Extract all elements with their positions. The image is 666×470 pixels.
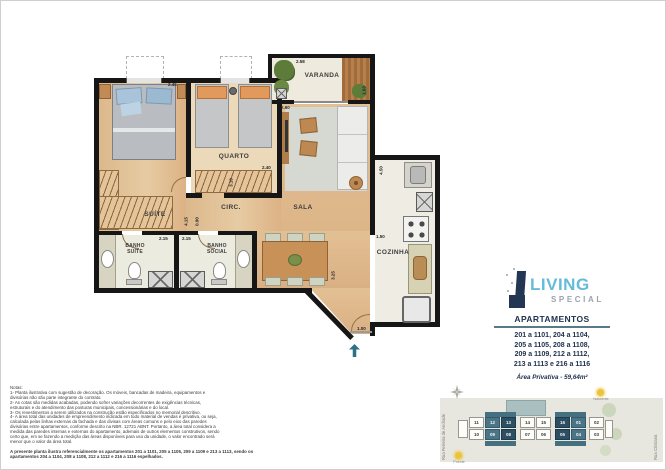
wall-varanda-sala-2 [348,100,372,104]
dim-cozinha-pass: 1.50 [376,234,385,239]
suite-window-projection [126,56,164,79]
unit-box-highlighted: 04 [571,429,586,440]
apartments-line: 213 a 1113 e 216 a 1116 [494,360,610,370]
label-banho-suite-line2: SUÍTE [127,249,143,255]
logo-glyph-foot [509,295,525,308]
dim-cozinha-side: 4.50 [379,164,384,178]
sun-west-label: Poente [453,460,464,464]
dim-sala-top: 2.60 [281,105,290,110]
sala-armchair-1 [299,117,317,134]
marketing-floorplan-page: SUÍTE QUARTO CIRC. SALA VARANDA COZINHA … [0,0,666,470]
logo-special-text: SPECIAL [551,295,604,304]
wall-varanda-top [268,54,375,58]
note-item: 4- A área total das unidades de empreend… [10,415,220,444]
banho-social-toilet [213,262,226,279]
dining-chair [309,277,325,286]
wall-suite-quarto [186,78,191,177]
label-quarto: QUARTO [219,153,249,160]
suite-pillow [146,87,173,104]
logo-speckle [511,282,513,284]
circ-floor [186,193,281,231]
suite-sheet-fold [113,128,175,132]
entry-arrow-icon [349,344,360,357]
sun-east-label: Nascente [593,397,608,401]
unit-box: 15 [536,417,551,428]
label-circ: CIRC. [221,204,241,211]
quarto-window-projection [220,56,252,79]
apartments-line: 205 a 1105, 208 a 1108, [494,341,610,351]
logo-speckle [507,290,509,292]
compass-icon [450,385,464,399]
kitchen-stove [403,216,429,242]
unit-box-highlighted: 01 [571,417,586,428]
dim-quarto-side: 3.10 [229,176,234,190]
unit-box-highlighted: 16 [555,417,570,428]
quarto-window [220,78,250,83]
label-banho-social-line2: SOCIAL [207,249,227,255]
varanda-shaft [276,88,287,99]
varanda-sliding-door [294,101,348,103]
street-right-label: Rua Cristiana [653,402,658,460]
unit-box-highlighted: 13 [501,417,516,428]
dining-chair [287,277,303,286]
quarto-bed-1-pillow [197,86,227,99]
unit-box: 10 [469,429,484,440]
quarto-stool [229,87,237,95]
unit-box: 14 [520,417,535,428]
kitchen-counter-board [413,256,427,280]
notes-body: 1- Planta ilustrativa com sugestão de de… [10,391,220,445]
banho-social-basin [237,250,250,268]
kitchen-sink-basin [410,166,426,184]
logo-speckle [506,274,508,276]
unit-box: 03 [589,429,604,440]
dim-quarto-bottom: 2.40 [262,165,271,170]
wall-kitchen-left-upper [370,160,375,235]
unit-box: 06 [536,429,551,440]
apartments-block: APARTAMENTOS 201 a 1101, 204 a 1104, 205… [494,314,610,369]
notes-block: Notas: 1- Planta ilustrativa com sugestã… [10,386,256,460]
apartments-title: APARTAMENTOS [494,314,610,324]
quarto-wardrobe [195,170,272,193]
dim-banho-suite: 2.15 [159,236,168,241]
wall-quarto-bottom-2 [224,193,282,198]
banho-social-shower [180,271,205,288]
sun-west-icon [455,452,462,459]
building-endcap-left [458,420,468,438]
dim-banho-social: 2.15 [182,236,191,241]
dim-sala-side: 3.25 [331,269,336,283]
unit-box-highlighted: 12 [485,417,500,428]
sala-armchair-2 [299,140,317,157]
wall-bottom-left [94,288,312,293]
site-map-green [602,403,616,417]
dining-centerpiece [288,254,302,266]
notes-footer: A presente planta ilustra referencialmen… [10,450,256,460]
varanda-plant [274,60,294,80]
banho-suite-basin [101,250,114,268]
apartments-line: 209 a 1109, 212 a 1112, [494,350,610,360]
logo-speckle [513,268,515,270]
wall-bath-top-2 [142,231,198,235]
unit-box-highlighted: 05 [555,429,570,440]
sun-east-icon [597,389,604,396]
label-suite: SUÍTE [144,211,165,218]
suite-window [126,78,162,83]
dim-circ-width: 0.90 [195,215,200,229]
apartments-divider [494,326,610,328]
street-left-label: Rua Ferreira de Andrade [441,400,446,460]
dim-suite-top: 2.45 [168,82,177,87]
building-balcony [555,441,586,446]
wall-bath-right [252,231,257,293]
site-map-green [600,445,611,456]
label-cozinha: COZINHA [377,249,409,256]
dim-varanda-side: 1.63 [362,84,367,98]
unit-box: 11 [469,417,484,428]
wall-kitchen-top [370,155,440,160]
label-sala: SALA [293,204,312,211]
kitchen-shaft [416,192,433,212]
wall-varanda-right [370,54,375,104]
suite-nightstand-left [99,84,111,99]
banho-suite-toilet-tank [126,279,142,285]
sala-sofa-cushion-line [338,134,367,135]
wall-kitchen-right [435,155,440,327]
wall-quarto-bottom-1 [186,193,202,198]
label-banho-suite: BANHO SUÍTE [125,244,144,255]
quarto-bed-2-pillow [240,86,270,99]
wall-sala-right [370,100,375,160]
wall-varanda-left [268,54,272,82]
sala-sofa-cushion-line [338,162,367,163]
dim-circ-length: 4.15 [184,215,189,229]
wall-bath-divider [174,231,179,293]
sala-tv [285,120,288,152]
unit-box-highlighted: 09 [485,429,500,440]
dim-varanda-top: 2.58 [296,59,305,64]
dining-chair [265,277,281,286]
unit-box: 02 [589,417,604,428]
building-endcap-right [605,420,613,438]
unit-box: 07 [520,429,535,440]
wall-entry-right [370,322,375,336]
logo-living-text: LIVING [530,275,590,295]
banho-social-toilet-tank [211,279,227,285]
banho-suite-toilet [128,262,141,279]
kitchen-fridge [402,296,431,323]
unit-box-highlighted: 08 [501,429,516,440]
entry-door-leaf [350,331,372,333]
wall-varanda-sala-1 [270,100,294,104]
suite-nightstand-right [177,84,186,99]
building-balcony [485,441,516,446]
sala-side-table-dot [354,181,358,185]
label-banho-social: BANHO SOCIAL [207,244,227,255]
dim-entry: 1.00 [357,326,366,331]
private-area-label: Área Privativa - 59,64m² [494,374,610,381]
banho-suite-shower [148,271,173,288]
apartments-line: 201 a 1101, 204 a 1104, [494,331,610,341]
label-varanda: VARANDA [305,72,340,79]
